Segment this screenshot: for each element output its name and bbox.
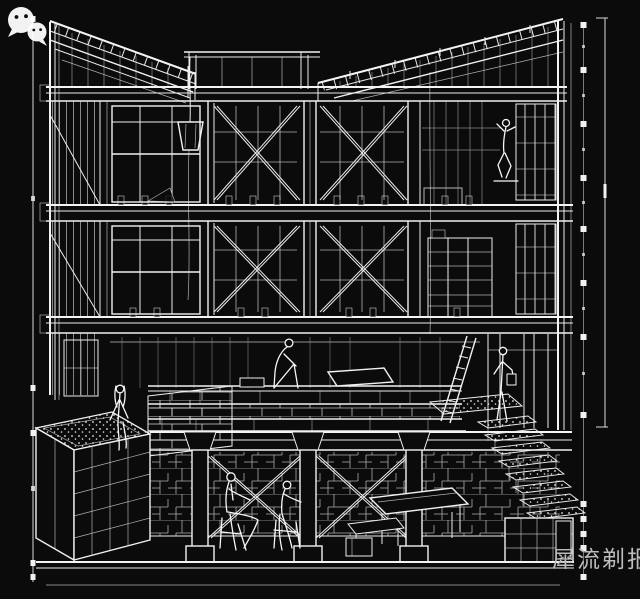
story-middle [50, 221, 556, 317]
right-dimension-line [596, 18, 608, 427]
roof-right-slope [318, 19, 563, 101]
center-column [304, 101, 316, 205]
right-wall-edge [558, 20, 571, 430]
deck-block [240, 378, 264, 387]
right-open-bay [422, 101, 500, 205]
ground-lines [36, 562, 574, 585]
mattress [328, 368, 393, 386]
figure-standing [494, 347, 516, 421]
braced-bay [320, 221, 420, 317]
climbing-wall [516, 104, 556, 200]
shelf-unit [428, 230, 492, 317]
stair-landing [430, 394, 522, 414]
floor-beam-second [40, 196, 573, 221]
braced-bay [208, 101, 300, 205]
right-plank-wall [516, 224, 556, 314]
floor-beam-third [40, 308, 573, 333]
right-level-marks [581, 22, 587, 580]
roof-center-valley [184, 52, 320, 89]
story-top [50, 101, 556, 205]
window-bay [112, 226, 200, 314]
architectural-section-drawing [0, 0, 640, 599]
window-bay [112, 106, 200, 202]
braced-bay [208, 221, 300, 317]
screenshot-canvas: 犀流剃报 [0, 0, 640, 599]
braced-bay [320, 101, 420, 205]
wechat-icon [0, 0, 52, 52]
left-dimension-line [31, 16, 36, 582]
figure-seated-knees-up [274, 339, 298, 388]
planter-box [36, 412, 150, 560]
back-wall-studs [110, 337, 480, 388]
crate [346, 538, 372, 556]
center-column [304, 221, 316, 317]
wechat-watermark-text: 犀流剃报 [552, 549, 640, 572]
floor-beam-top [40, 85, 567, 101]
